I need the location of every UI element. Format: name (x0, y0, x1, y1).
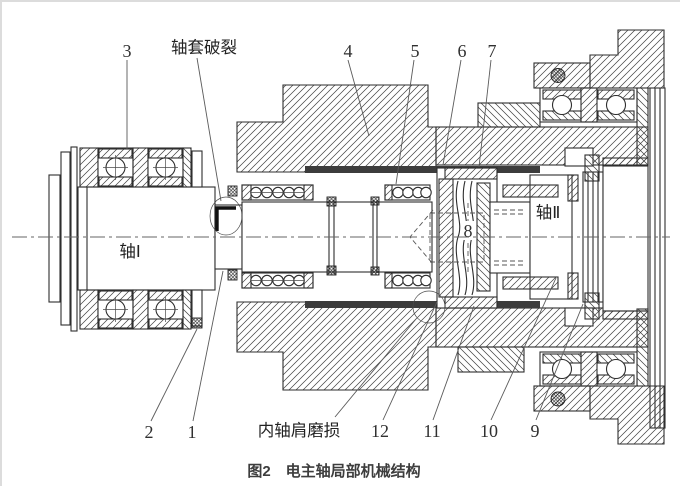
figure-page: 3 轴套破裂 4 5 6 7 轴Ⅰ 轴Ⅱ 8 2 1 内轴肩磨损 12 11 1… (0, 0, 680, 486)
spring-stack-right-top (385, 185, 431, 200)
callout-4: 4 (344, 41, 353, 61)
callout-7: 7 (488, 41, 497, 61)
callout-12: 12 (371, 421, 389, 441)
spline-sleeve (490, 202, 530, 273)
shaft2-label: 轴Ⅱ (536, 203, 561, 222)
shaft1-bearing-set-top (80, 148, 202, 187)
annotation-shoulder-wear: 内轴肩磨损 (258, 421, 341, 440)
spring-stack-right-bottom (385, 273, 431, 288)
callout-8: 8 (464, 221, 473, 241)
callout-11: 11 (423, 421, 440, 441)
figure-caption: 图2 电主轴局部机械结构 (247, 462, 420, 480)
oring-seal-left-top (228, 186, 237, 196)
left-flange-plates (49, 147, 77, 331)
spring-stack-left-bottom (242, 273, 313, 288)
callout-9: 9 (531, 421, 540, 441)
spindle-cross-section-drawing: 3 轴套破裂 4 5 6 7 轴Ⅰ 轴Ⅱ 8 2 1 内轴肩磨损 12 11 1… (0, 0, 680, 486)
housing-upper-block (237, 85, 436, 172)
callout-10: 10 (480, 421, 498, 441)
oring-seal-left-bottom (228, 270, 237, 280)
thin-sleeve-plate-bottom (305, 301, 540, 308)
thin-sleeve-plate-top (305, 166, 540, 173)
callout-5: 5 (411, 41, 420, 61)
shaft1-label: 轴Ⅰ (119, 242, 140, 261)
shaft1-bearing-set-bottom (80, 290, 202, 329)
housing-lower-block (237, 302, 436, 390)
right-end-cap (650, 88, 665, 428)
annotation-sleeve-crack: 轴套破裂 (171, 38, 237, 57)
callout-6: 6 (458, 41, 467, 61)
callout-1: 1 (188, 422, 197, 442)
callout-3: 3 (123, 41, 132, 61)
spring-stack-left-top (242, 185, 313, 200)
shaft-1-body (78, 187, 215, 290)
callout-2: 2 (145, 422, 154, 442)
